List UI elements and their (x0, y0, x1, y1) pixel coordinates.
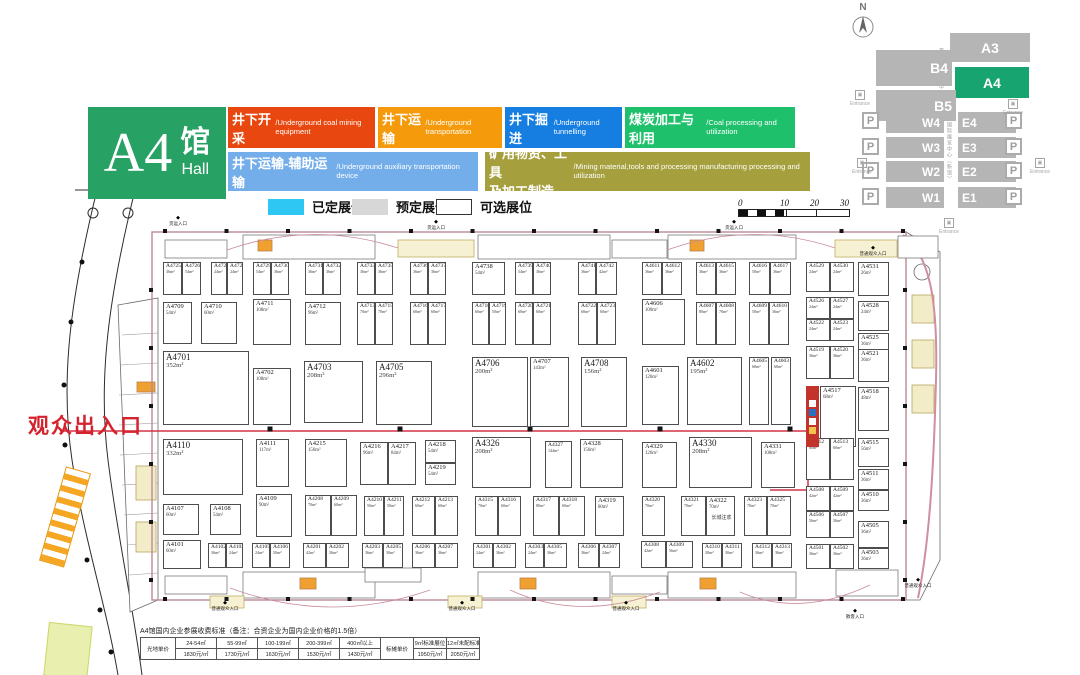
category-chip-5: 井下运输-辅助运输/Underground auxiliary transpor… (228, 152, 478, 191)
gate-label-text: 散客入口 (830, 613, 880, 619)
booth-area: 36m² (431, 270, 445, 274)
booth-A4735: A473536m² (375, 262, 393, 295)
booth-A4711: A4711108m² (253, 299, 291, 345)
parking-icon: P (1005, 138, 1022, 155)
booth-area: 70m² (378, 310, 392, 314)
booth-area: 24m² (230, 270, 242, 274)
minimap-hall-A4: A4 (955, 67, 1029, 98)
booth-area: 24m² (476, 551, 492, 555)
booth-A4507: A450736m² (830, 511, 854, 538)
booth-A4720: A472060m² (515, 302, 533, 345)
price-cell: 1630元/㎡ (258, 649, 299, 660)
booth-A4721: A472160m² (533, 302, 551, 345)
booth-id: A4219 (428, 465, 455, 472)
booth-area: 70m² (719, 310, 735, 314)
legend-item: 预定展位 (352, 197, 448, 216)
booth-area: 296m² (379, 372, 431, 379)
booth-area: 36m² (211, 551, 225, 555)
hall-number: A4 (104, 125, 172, 181)
booth-A4503: A450336m² (858, 548, 889, 569)
booth-A4708: A4708156m² (581, 357, 627, 427)
booth-A4320: A432070m² (642, 496, 665, 536)
booth-area: 60m² (166, 513, 198, 518)
booth-id: A4711 (256, 301, 290, 308)
booth-id: A4101 (166, 542, 200, 549)
booth-area: 50m² (367, 504, 383, 508)
booth-id: A4511 (861, 471, 888, 478)
booth-A4108: A410854m² (210, 504, 241, 535)
booth-area: 54m² (428, 472, 455, 477)
booth-id: A4216 (363, 444, 387, 451)
booth-A4529: A452924m² (806, 262, 830, 292)
category-cn: 煤炭加工与利用 (629, 109, 703, 147)
legend-swatch (268, 199, 304, 215)
booth-id: A4708 (584, 359, 626, 368)
booth-area: 156m² (584, 368, 626, 375)
booth-area: 96m² (308, 311, 340, 316)
booth-area: 36m² (581, 551, 598, 555)
green-pad (43, 622, 92, 675)
booth-A4319: A431980m² (595, 496, 624, 536)
booth-A4730: A473036m² (271, 262, 289, 295)
booth-A4211: A421150m² (384, 496, 404, 536)
booth-area: 84m² (391, 451, 415, 456)
booth-area: 144m² (548, 449, 571, 453)
booth-area: 24m² (602, 551, 619, 555)
price-cell: 2050元/㎡ (447, 649, 480, 660)
booth-area: 36m² (861, 499, 888, 504)
category-cn: 井下开采 (232, 109, 272, 147)
price-cell: 1730元/㎡ (217, 649, 258, 660)
booth-A4303: A430324m² (525, 543, 544, 568)
booth-area: 36m² (861, 557, 888, 562)
booth-id: A4701 (166, 353, 248, 362)
booth-area: 70m² (747, 504, 766, 508)
booth-A4705: A4705296m² (376, 361, 432, 425)
booth-id: A4331 (764, 444, 794, 451)
booth-A4738: A473854m² (472, 262, 505, 295)
booth-area: 108m² (256, 377, 290, 382)
booth-A4322: A432270m²长城注浆 (706, 496, 735, 536)
booth-A4109: A410990m² (256, 494, 292, 537)
east-building (903, 232, 940, 600)
price-cell: 1530元/㎡ (299, 649, 340, 660)
booth-area: 70m² (645, 504, 664, 508)
booth-area: 24m² (833, 270, 853, 274)
booth-area: 36m² (833, 552, 853, 556)
booth-id: A4521 (861, 351, 888, 358)
booth-area: 54m² (428, 449, 455, 454)
price-cell: 100-199㎡ (258, 638, 299, 649)
category-chip-4: 煤炭加工与利用/Coal processing and utilization (625, 107, 795, 148)
booth-area: 42m² (599, 270, 616, 274)
booth-id: A4328 (583, 441, 622, 448)
booth-A4510: A451036m² (858, 490, 889, 511)
booth-A4531: A453126m² (858, 262, 889, 296)
booth-area: 60m² (334, 503, 356, 507)
booth-A4301: A430124m² (473, 543, 493, 568)
parking-icon: P (862, 112, 879, 129)
booth-area: 60m² (600, 310, 615, 314)
booth-A4729: A472954m² (253, 262, 271, 295)
booth-id: A4707 (533, 359, 568, 366)
booth-area: 90m² (259, 503, 291, 508)
booth-area: 24m² (833, 305, 853, 309)
booth-A4719: A471950m² (489, 302, 506, 345)
booth-area: 50m² (752, 310, 768, 314)
booth-area: 54m² (518, 270, 532, 274)
booth-A4519: A451936m² (806, 346, 830, 379)
booth-area: 60m² (475, 310, 488, 314)
booth-id: A4505 (861, 523, 888, 530)
booth-A4327: A4327144m² (545, 441, 572, 488)
top-structures (165, 234, 938, 259)
booth-A4608: A460870m² (716, 302, 736, 345)
entrance-label: Entrance (932, 229, 966, 235)
category-cn: 井下运输 (382, 109, 422, 147)
booth-area: 50m² (752, 270, 769, 274)
booth-id: A4703 (307, 363, 362, 372)
booth-area: 54m² (256, 270, 270, 274)
booth-A4520: A452036m² (830, 346, 854, 379)
booth-A4208: A420870m² (305, 495, 331, 536)
booth-area: 60m² (431, 310, 445, 314)
price-cell: 1830元/㎡ (176, 649, 217, 660)
booth-area: 60m² (204, 311, 236, 316)
booth-area: 352m² (166, 362, 248, 369)
booth-area: 24m² (861, 310, 888, 315)
minimap-hall-W4: W4 (886, 112, 944, 133)
gate-label: ◆货运入口 (706, 220, 762, 231)
booth-area: 36m² (308, 270, 322, 274)
booth-A4717: A471760m² (428, 302, 446, 345)
booth-A4703: A4703208m² (304, 361, 363, 423)
booth-area: 36m² (772, 310, 788, 314)
scale-tick: 0 (738, 198, 743, 208)
booth-area: 42m² (809, 494, 829, 498)
booth-area: 30m² (705, 551, 721, 555)
booth-A4307: A430724m² (599, 543, 620, 568)
hall-title-card: A4 馆 Hall (88, 107, 226, 199)
booth-area: 56m² (861, 447, 888, 452)
booth-area: 36m² (274, 270, 288, 274)
booth-A4605: A460568m² (749, 357, 769, 425)
booth-area: 332m² (166, 450, 242, 457)
booth-area: 200m² (475, 368, 527, 375)
booth-A4106: A410650m² (270, 543, 290, 568)
booth-note: 长城注浆 (709, 516, 734, 521)
booth-id: A4601 (645, 368, 678, 375)
booth-area: 60m² (415, 504, 434, 508)
booth-area: 60m² (562, 504, 584, 508)
booth-A4606: A4606100m² (642, 299, 685, 345)
legend-item: 可选展位 (436, 197, 532, 216)
gate-label: ◆货运入口 (408, 220, 464, 231)
scale-tick: 30 (840, 198, 849, 208)
booth-A4329: A4329126m² (642, 442, 677, 488)
booth-A4206: A420636m² (412, 543, 435, 568)
booth-A4530: A453024m² (830, 262, 854, 292)
booth-area: 36m² (775, 551, 791, 555)
entrance-icon: ▣Entrance (1023, 158, 1057, 175)
compass-icon: N (846, 2, 880, 48)
price-cell: 标摊单价 (381, 638, 414, 660)
booth-id: A4606 (645, 301, 684, 308)
price-cell: 55-99㎡ (217, 638, 258, 649)
booth-A4726: A472654m² (182, 262, 201, 295)
booth-id: A4510 (861, 492, 888, 499)
booth-area: 24m² (214, 270, 226, 274)
scale-bar: 0 10 20 30 (738, 198, 850, 220)
price-cell: 200-399㎡ (299, 638, 340, 649)
booth-A4328: A4328156m² (580, 439, 623, 488)
booth-area: 54m² (166, 311, 191, 316)
booth-A4702: A4702108m² (253, 368, 291, 425)
booth-area: 50m² (387, 504, 403, 508)
booth-A4502: A450236m² (830, 544, 854, 569)
booth-A4217: A421784m² (388, 442, 416, 485)
booth-area: 208m² (307, 372, 362, 379)
booth-A4213: A421360m² (435, 496, 458, 536)
booth-A4103: A410324m² (226, 543, 243, 568)
booth-A4611: A461136m² (642, 262, 662, 295)
booth-A4733: A473336m² (357, 262, 375, 295)
entrance-icon: ▣Entrance (845, 158, 879, 175)
booth-area: 36m² (581, 270, 595, 274)
booth-area: 60m² (518, 310, 532, 314)
booth-A4309: A430956m² (666, 541, 693, 568)
booth-area: 156m² (583, 448, 622, 453)
scale-tick: 20 (810, 198, 819, 208)
booth-id: A4702 (256, 370, 290, 377)
parking-icon: P (862, 188, 879, 205)
gate-label-text: 普通观众入口 (200, 605, 250, 611)
booth-area: 36m² (360, 270, 374, 274)
gate-label-text: 普通观众入口 (601, 605, 651, 611)
booth-A4316: A431660m² (498, 496, 521, 536)
booth-A4610: A461036m² (769, 302, 789, 345)
legend-swatch (352, 199, 388, 215)
booth-area: 36m² (536, 270, 550, 274)
compass-north-label: N (846, 2, 880, 13)
booth-A4715: A471570m² (375, 302, 393, 345)
booth-A4728: A472824m² (227, 262, 243, 295)
booth-A4612: A461236m² (662, 262, 682, 295)
hall-cn: 馆 (180, 128, 210, 158)
gate-label-text: 普通观众入口 (893, 582, 943, 588)
booth-A4509: A450942m² (830, 486, 854, 511)
booth-id: A4108 (213, 506, 240, 513)
booth-area: 68m² (774, 365, 790, 369)
price-cell: 12㎡未配标准展位 (447, 638, 480, 649)
booth-A4740: A474036m² (533, 262, 551, 295)
booth-id: A4738 (475, 264, 504, 271)
booth-area: 117m² (259, 448, 288, 453)
gate-label: ◆普通观众入口 (434, 601, 490, 612)
parking-icon: P (1005, 188, 1022, 205)
booth-area: 36m² (809, 552, 829, 556)
booth-A4323: A432370m² (744, 496, 767, 536)
floor-plan: A472536m²A472654m²A472724m²A472824m²A472… (0, 0, 1080, 675)
booth-A4609: A460950m² (749, 302, 769, 345)
booth-A4727: A472724m² (211, 262, 227, 295)
bottom-structures (165, 568, 898, 608)
booth-area: 54m² (185, 270, 200, 274)
category-en: /Underground auxiliary transportation de… (336, 163, 474, 180)
booth-A4312: A431236m² (752, 543, 772, 568)
entrance-glyph: ▣ (944, 218, 954, 228)
booth-area: 30m² (725, 551, 741, 555)
booth-area: 24m² (809, 270, 829, 274)
booth-id: A4528 (861, 303, 888, 310)
legend-swatch (436, 199, 472, 215)
price-cell: 24-54㎡ (176, 638, 217, 649)
booth-A4313: A431336m² (772, 543, 792, 568)
booth-area: 30m² (386, 551, 402, 555)
booth-area: 70m² (308, 503, 330, 507)
booth-area: 36m² (547, 551, 566, 555)
booth-area: 70m² (360, 310, 374, 314)
booth-A4209: A420960m² (331, 495, 357, 536)
booth-A4203: A420336m² (362, 543, 383, 568)
booth-A4615: A461536m² (716, 262, 736, 295)
booth-area: 24m² (809, 327, 829, 331)
booth-A4330: A4330208m² (689, 437, 752, 488)
booth-area: 70m² (478, 504, 497, 508)
gate-label: ◆货运入口 (150, 216, 206, 227)
booth-A4306: A430636m² (578, 543, 599, 568)
booth-A4310: A431030m² (702, 543, 722, 568)
category-chip-3: 井下掘进/Underground tunnelling (505, 107, 622, 148)
booth-A4518: A451848m² (858, 387, 889, 431)
booth-A4201: A420142m² (303, 543, 326, 568)
booth-A4315: A431570m² (475, 496, 498, 536)
category-chip-2: 井下运输/Underground transportation (378, 107, 502, 148)
booth-area: 36m² (719, 270, 735, 274)
booth-area: 36m² (365, 551, 382, 555)
booth-A4308: A430842m² (641, 541, 666, 568)
booth-area: 60m² (438, 504, 457, 508)
booth-area: 60m² (501, 504, 520, 508)
booth-area: 80m² (699, 310, 715, 314)
booth-area: 143m² (533, 366, 568, 371)
booth-id: A4319 (598, 498, 623, 505)
booth-id: A4110 (166, 441, 242, 450)
booth-A4501: A450136m² (806, 544, 830, 569)
minimap-hall-B4: B4 (876, 50, 952, 86)
booth-area: 36m² (645, 270, 661, 274)
booth-area: 50m² (492, 310, 505, 314)
legend-item: 已定展位 (268, 197, 364, 216)
booth-area: 24m² (809, 305, 829, 309)
booth-A4219: A421954m² (425, 463, 456, 485)
category-en: /Underground coal mining equipment (275, 119, 371, 136)
booth-A4722: A472260m² (578, 302, 597, 345)
booth-A4732: A473236m² (323, 262, 341, 295)
booth-A4513: A451360m² (830, 438, 854, 480)
booth-A4215: A4215156m² (305, 439, 347, 487)
category-chip-6: 矿用物资、工具 及加工制造/Mining material,tools and … (485, 152, 810, 191)
booth-area: 100m² (645, 308, 684, 313)
booth-A4325: A432570m² (767, 496, 791, 536)
booth-area: 36m² (496, 551, 515, 555)
booth-id: A4330 (692, 439, 751, 448)
booth-A4207: A420736m² (435, 543, 458, 568)
booth-area: 36m² (329, 551, 348, 555)
booth-area: 36m² (861, 342, 888, 347)
booth-area: 24m² (528, 551, 543, 555)
entrance-icon: ▣Entrance (932, 218, 966, 235)
booth-area: 42m² (833, 494, 853, 498)
booth-area: 156m² (308, 448, 346, 453)
entrance-icon: ▣Entrance (996, 99, 1030, 116)
booth-A4202: A420236m² (326, 543, 349, 568)
booth-A4331: A4331108m² (761, 442, 795, 488)
booth-A4318: A431860m² (559, 496, 585, 536)
booth-A4706: A4706200m² (472, 357, 528, 427)
booth-area: 70m² (709, 505, 734, 510)
booth-A4725: A472536m² (163, 262, 182, 295)
booth-A4302: A430236m² (493, 543, 516, 568)
minimap-hall-A3: A3 (950, 33, 1030, 62)
booth-id: A4709 (166, 304, 191, 311)
gate-label-text: 货运入口 (153, 220, 203, 226)
price-cell: 光地单价 (141, 638, 176, 660)
entrance-glyph: ▣ (1008, 99, 1018, 109)
booth-A4321: A432170m² (681, 496, 706, 536)
booth-A4523: A452324m² (830, 319, 854, 341)
booth-area: 70m² (770, 504, 790, 508)
booth-area: 60m² (166, 549, 200, 554)
booth-A4102: A410236m² (208, 543, 226, 568)
booth-area: 80m² (598, 505, 623, 510)
booth-A4528: A452824m² (858, 301, 889, 331)
booth-id: A4517 (823, 388, 855, 395)
booth-area: 54m² (213, 513, 240, 518)
scale-tick: 10 (780, 198, 789, 208)
category-cn: 井下掘进 (509, 109, 551, 147)
booth-id: A4503 (861, 550, 888, 557)
booth-area: 36m² (438, 551, 457, 555)
price-cell: 1950元/㎡ (414, 649, 447, 660)
booth-A4613: A461336m² (696, 262, 716, 295)
booth-area: 26m² (861, 271, 888, 276)
booth-A4305: A430536m² (544, 543, 567, 568)
booth-A4326: A4326208m² (472, 437, 531, 488)
entrance-icon: ▣Entrance (843, 90, 877, 107)
minimap-hall-W3: W3 (886, 137, 944, 158)
booth-A4216: A421696m² (360, 442, 388, 485)
booth-A4526: A452624m² (806, 297, 830, 319)
booth-area: 36m² (809, 354, 829, 358)
booth-A4712: A471296m² (305, 302, 341, 345)
price-cell: 400㎡以上 (340, 638, 381, 649)
booth-id: A4111 (259, 441, 288, 448)
booth-id: A4706 (475, 359, 527, 368)
gate-label-text: 货运入口 (411, 224, 461, 230)
booth-area: 60m² (536, 310, 550, 314)
booth-id: A4518 (861, 389, 888, 396)
entrance-label: Entrance (843, 101, 877, 107)
booth-id: A4107 (166, 506, 198, 513)
booth-id: A4531 (861, 264, 888, 271)
booth-A4210: A421050m² (364, 496, 384, 536)
category-en: /Underground tunnelling (554, 119, 618, 136)
booth-id: A4712 (308, 304, 340, 311)
price-table-title: A4馆国内企业参展收费标准（备注：合资企业为国内企业价格的1.5倍） (140, 626, 485, 636)
booth-area: 126m² (645, 451, 676, 456)
booth-area: 54m² (475, 271, 504, 276)
